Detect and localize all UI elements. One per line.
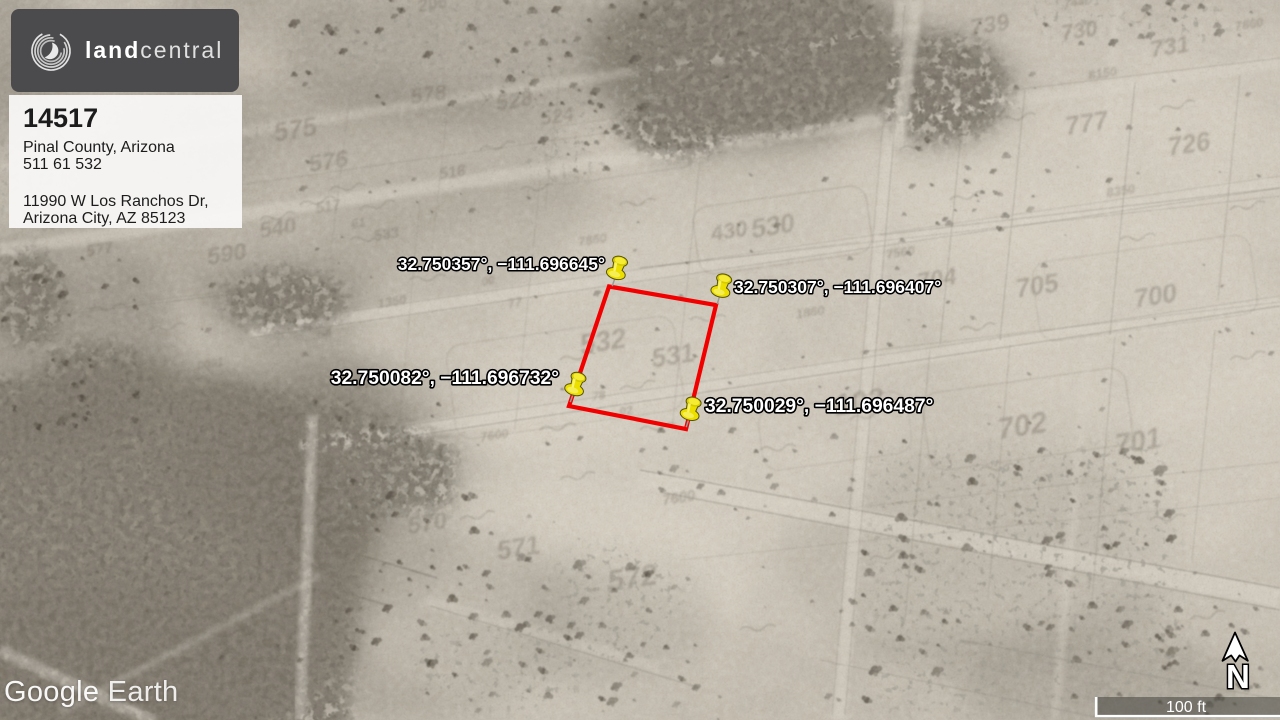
svg-text:N: N (1226, 658, 1250, 695)
svg-text:32.750357°, −111.696645°: 32.750357°, −111.696645° (398, 254, 605, 274)
svg-text:100 ft: 100 ft (1166, 699, 1207, 716)
svg-text:32.750307°, −111.696407°: 32.750307°, −111.696407° (734, 277, 941, 297)
svg-text:32.750029°, −111.696487°: 32.750029°, −111.696487° (705, 396, 933, 417)
svg-text:32.750082°, −111.696732°: 32.750082°, −111.696732° (331, 368, 559, 389)
